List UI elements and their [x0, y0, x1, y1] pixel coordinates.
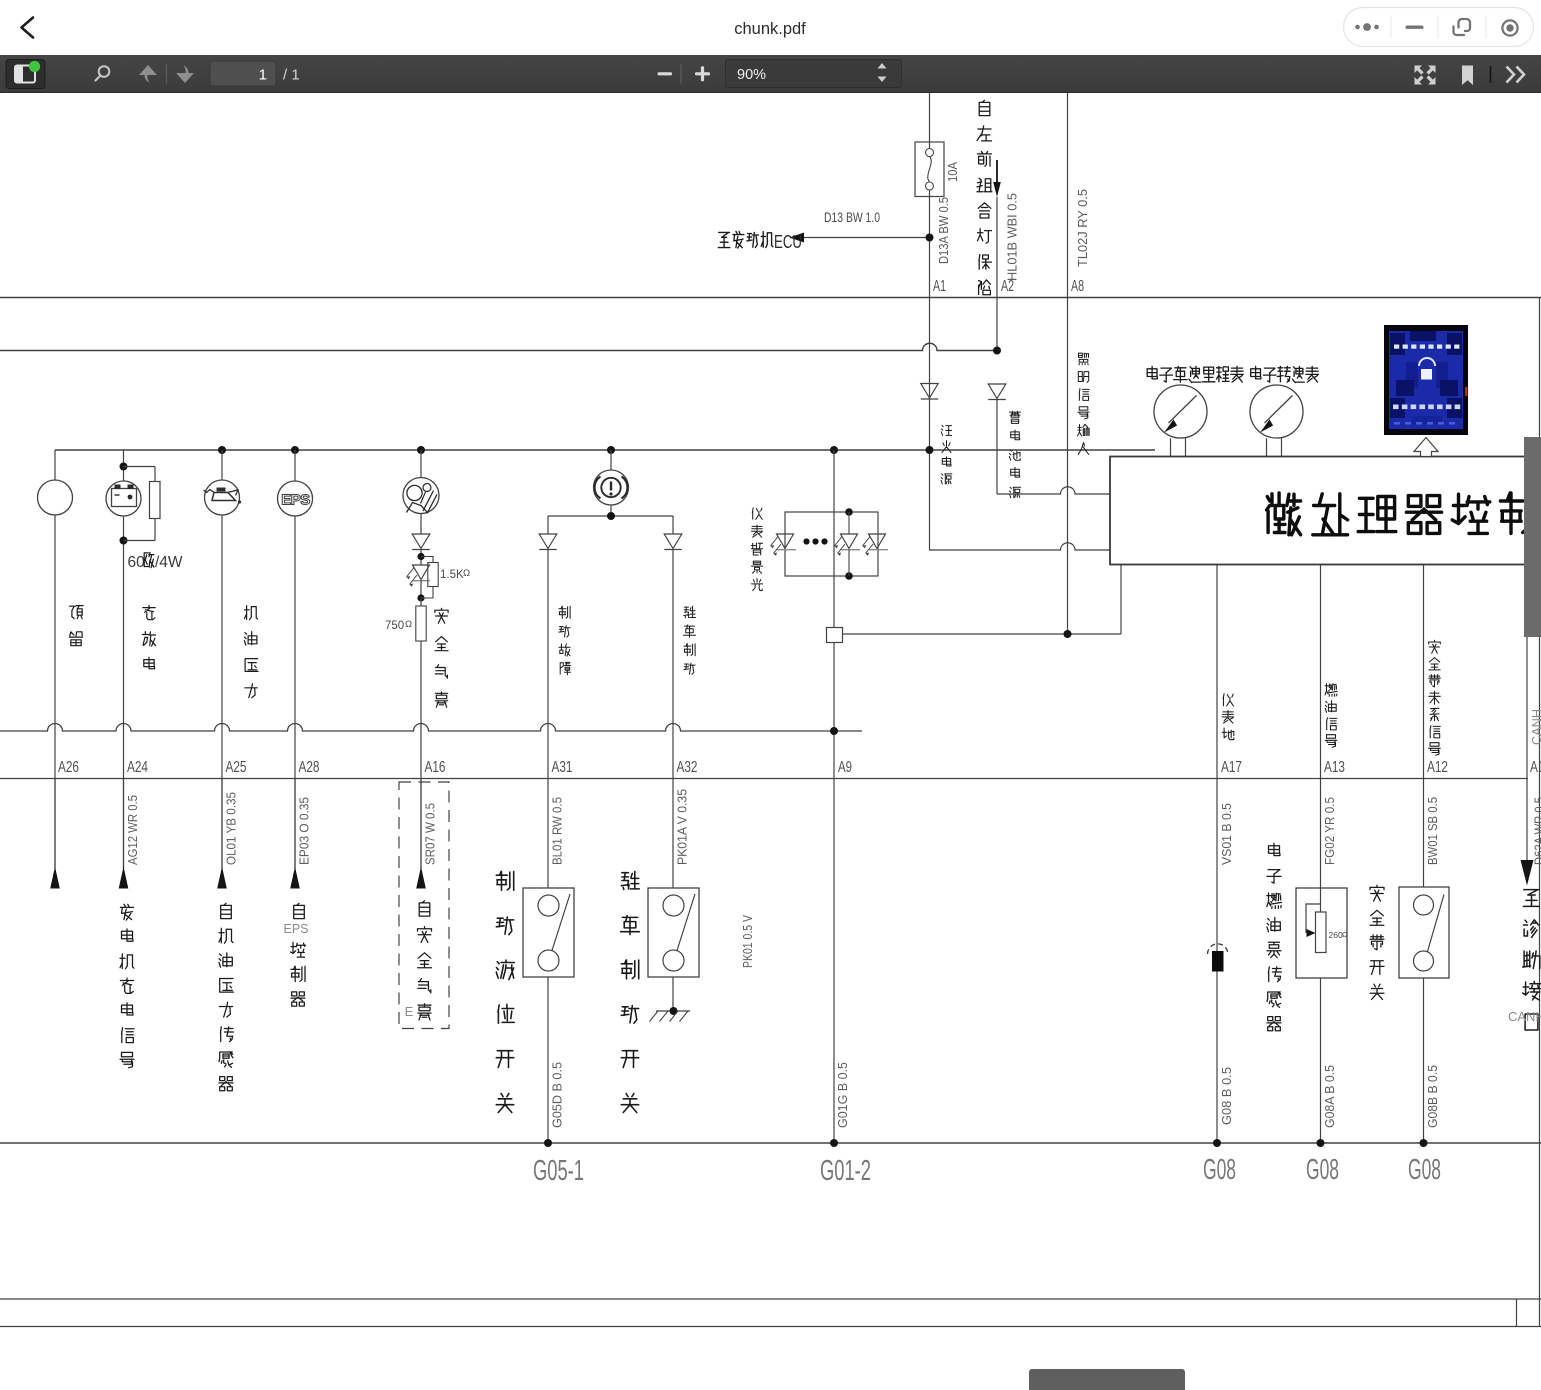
svg-text:Ω: Ω: [1342, 930, 1348, 939]
svg-text:A12: A12: [1427, 759, 1448, 776]
svg-text:G01-2: G01-2: [820, 1155, 871, 1187]
svg-text:A24: A24: [127, 759, 148, 776]
svg-text:CANH: CANH: [1529, 709, 1541, 745]
svg-text:G08: G08: [1306, 1154, 1339, 1186]
svg-text:A28: A28: [299, 759, 320, 776]
svg-text:A9: A9: [838, 759, 852, 776]
svg-text:/ 1: / 1: [283, 67, 300, 84]
svg-text:chunk.pdf: chunk.pdf: [734, 20, 806, 38]
svg-text:D13A BW 0.5: D13A BW 0.5: [937, 197, 951, 264]
svg-text:G08 B 0.5: G08 B 0.5: [1220, 1067, 1234, 1125]
svg-text:10A: 10A: [946, 161, 960, 182]
svg-text:60: 60: [128, 554, 146, 571]
svg-text:HL01B WBI 0.5: HL01B WBI 0.5: [1006, 193, 1020, 281]
svg-text:VS01 B 0.5: VS01 B 0.5: [1220, 803, 1234, 865]
svg-text:A32: A32: [677, 759, 698, 776]
svg-text:A26: A26: [58, 759, 79, 776]
svg-text:A2: A2: [1001, 278, 1014, 295]
svg-text:BL01 RW 0.5: BL01 RW 0.5: [551, 797, 565, 865]
svg-text:PK01 0.5 V: PK01 0.5 V: [741, 914, 755, 968]
svg-text:E: E: [405, 1004, 414, 1019]
svg-text:A25: A25: [226, 759, 247, 776]
svg-text:CANH: CANH: [1508, 1009, 1541, 1024]
svg-text:AG12 WR 0.5: AG12 WR 0.5: [126, 795, 140, 865]
svg-text:90%: 90%: [737, 67, 766, 83]
svg-text:D13 BW 1.0: D13 BW 1.0: [824, 210, 880, 225]
svg-text:EPS: EPS: [281, 492, 310, 509]
svg-text:A15: A15: [1530, 759, 1541, 776]
svg-text:ECU: ECU: [774, 231, 802, 252]
svg-text:G01G B 0.5: G01G B 0.5: [836, 1062, 850, 1128]
svg-text:260: 260: [1329, 930, 1343, 940]
svg-text:G08A B 0.5: G08A B 0.5: [1323, 1065, 1337, 1128]
svg-text:SR07 W 0.5: SR07 W 0.5: [424, 803, 438, 865]
svg-text:D62A WR 0.5: D62A WR 0.5: [1533, 797, 1541, 865]
svg-text:A1: A1: [933, 278, 946, 295]
svg-text:A8: A8: [1071, 278, 1084, 295]
svg-text:TL02J RY 0.5: TL02J RY 0.5: [1076, 189, 1090, 267]
svg-text:A16: A16: [425, 759, 446, 776]
svg-text:Ω: Ω: [463, 568, 470, 579]
svg-text:Ω: Ω: [405, 619, 412, 630]
svg-text:A17: A17: [1221, 759, 1242, 776]
svg-text:/4W: /4W: [155, 554, 183, 571]
svg-text:PK01A V 0.35: PK01A V 0.35: [676, 789, 690, 865]
svg-text:G08: G08: [1408, 1154, 1441, 1186]
svg-text:BW01 SB 0.5: BW01 SB 0.5: [1426, 797, 1440, 865]
svg-text:G08: G08: [1203, 1154, 1236, 1186]
svg-text:EPS: EPS: [283, 922, 308, 936]
svg-text:A31: A31: [552, 759, 573, 776]
svg-text:1: 1: [259, 67, 267, 84]
svg-text:G05D B 0.5: G05D B 0.5: [551, 1062, 565, 1128]
svg-text:EP03 O 0.35: EP03 O 0.35: [298, 797, 312, 865]
svg-text:G05-1: G05-1: [533, 1155, 584, 1187]
svg-text:FG02 YR 0.5: FG02 YR 0.5: [1323, 797, 1337, 865]
svg-text:A13: A13: [1324, 759, 1345, 776]
svg-text:OL01 YB 0.35: OL01 YB 0.35: [225, 792, 239, 865]
svg-text:750: 750: [385, 620, 404, 632]
svg-text:1.5K: 1.5K: [440, 569, 464, 581]
svg-text:G08B B 0.5: G08B B 0.5: [1426, 1065, 1440, 1128]
